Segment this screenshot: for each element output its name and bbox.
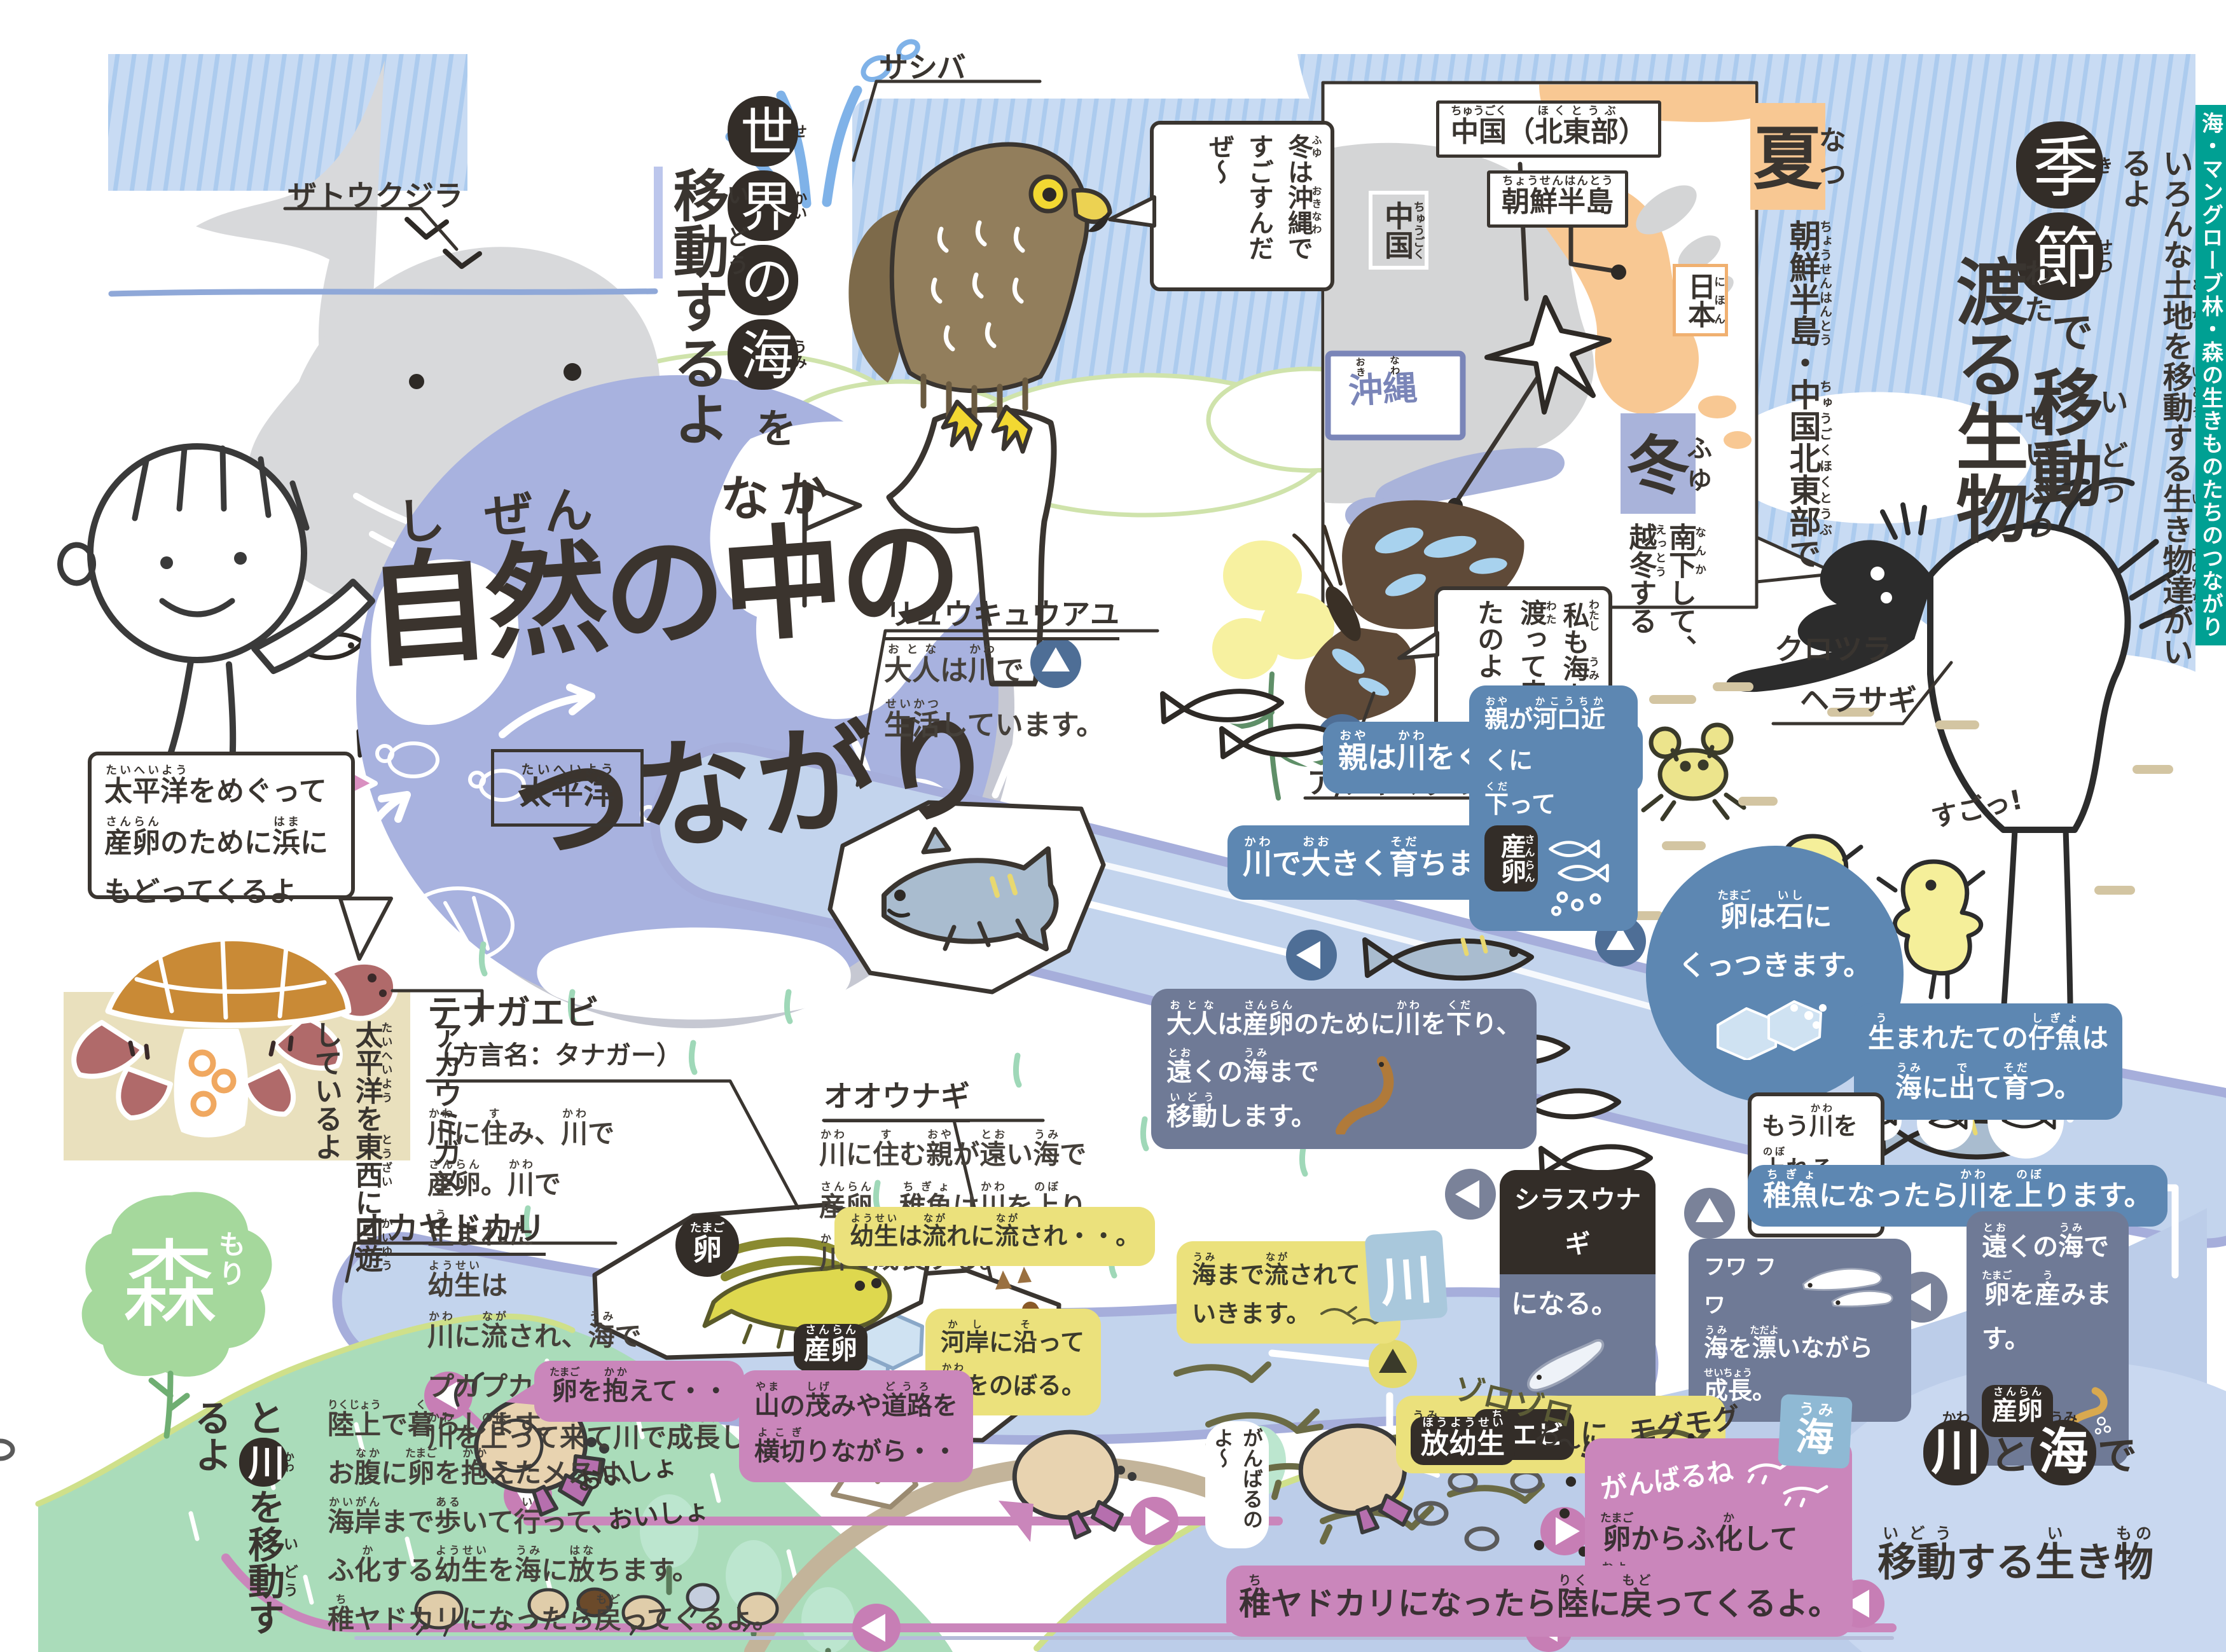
ayu-spawn-line1: 親おやが河口近かこうちかくに xyxy=(1484,696,1622,781)
bottom-title-river-circle: 川かわ xyxy=(1922,1424,1990,1481)
ayu-desc: 大人おとなは川かわで 生活せいかつしています。 xyxy=(884,644,1104,753)
release-larvae-badge: 放幼生ほうようせい xyxy=(1411,1417,1515,1465)
ayu-spawn-badge: 産さん卵らん xyxy=(1484,825,1538,891)
hermit-road-line1: 山やまの茂しげみや道路どうろを xyxy=(754,1380,958,1426)
hermit-road-line2: 横切よこぎりながら・・ xyxy=(754,1426,958,1472)
season-summer-box: 夏なつ xyxy=(1750,103,1825,210)
winter-note: 南下なんかして、越冬えっとうする xyxy=(1621,523,1706,713)
glass-eel-rest: になる。 xyxy=(1500,1274,1656,1332)
sea-sign: 海うみ xyxy=(1778,1394,1853,1469)
float-note: フワ フワ xyxy=(1704,1249,1790,1325)
eel-desc-line1: 川かわに住すむ親おやが遠とおい海うみで xyxy=(819,1129,1112,1181)
shrimp-upstream-line1: 河岸かしに沿そって xyxy=(941,1319,1086,1362)
bottom-title-to: と xyxy=(1990,1432,2029,1478)
turtle-bubble-tail xyxy=(331,895,401,965)
sky-topleft xyxy=(108,54,467,191)
nature-connection-poster: ザトウクジラ 世せ界かいの海うみ を 移い動どうするよ サシバ 冬ふゆは沖縄おき… xyxy=(0,0,2226,1652)
spawning-ayu-doodle xyxy=(1544,825,1622,921)
shrimp-step-drift1: 幼生ようせいは流ながれに流ながされ・・。 xyxy=(834,1207,1155,1266)
hermit-bubble-eggs-text: 卵たまごを抱かかえて・・ xyxy=(550,1377,729,1406)
bottom-title-de: で xyxy=(2098,1432,2137,1478)
crab-illustration xyxy=(1643,725,1744,819)
leptocephalus-doodles xyxy=(1797,1258,1896,1316)
eel-spawn-line2: 卵たまごを産うみます。 xyxy=(1982,1269,2113,1361)
turtle-bubble-line2: 産卵さんらんのために浜はまに xyxy=(104,816,338,867)
ayu-eggs-line1: 卵たまごは石いしに xyxy=(1717,890,1832,941)
hermit-return-text: 稚ちヤドカリになったら陸りくに戻もどってくるよ。 xyxy=(1239,1573,1840,1629)
hawk-label: サシバ xyxy=(879,45,966,86)
shrimp-egg-badge: 卵たまご xyxy=(675,1213,739,1277)
map-label-okinawa: 沖おき縄なわ xyxy=(1347,359,1418,413)
shrimp-egg-badge-text: 卵たまご xyxy=(690,1222,725,1269)
spoonbill-label-line1: クロツラ xyxy=(1774,626,1891,668)
ayu-name: リュウキュウアユ xyxy=(885,591,1119,640)
shrimp-alias: （方言名：タナガー） xyxy=(427,1035,682,1071)
cheer-note-1: がんばるのよ～ xyxy=(1205,1421,1269,1548)
shrimp-name: テナガエビ xyxy=(427,984,682,1035)
shrimp-drift1-text: 幼生ようせいは流ながれに流ながされ・・。 xyxy=(850,1222,1140,1250)
ayu-desc-line2: 生活せいかつしています。 xyxy=(884,698,1104,753)
season-title-wataru: 渡わたる生せい物ぶつ xyxy=(1933,254,2052,544)
sea-sign-text: 海うみ xyxy=(1795,1400,1836,1463)
ayu-step-spawn: 親おやが河口近かこうちかくに 下くだって 産さん卵らん xyxy=(1469,685,1638,931)
eel-downstream-line3: 移動いどうします。 xyxy=(1166,1102,1317,1131)
ayu-larvae-line1: 生うまれたての仔魚しぎょは xyxy=(1868,1012,2108,1062)
shrimp-tosea-line1: 海うみまで流ながされて xyxy=(1192,1251,1385,1295)
ayu-spawn-line2: 下くだって xyxy=(1484,781,1622,825)
ayu-step-larvae: 生うまれたての仔魚しぎょは 海うみに出でて育そだつ。 xyxy=(1854,1003,2122,1120)
map-label-korea: 朝鮮半島ちょうせんはんとう xyxy=(1487,170,1628,228)
eel-downstream-line1: 大人おとなは産卵さんらんのために川かわを下くだり、 xyxy=(1166,999,1521,1047)
ayu-juvenile-bubble-line1: もう川かわを xyxy=(1762,1103,1870,1146)
bottom-title-sea-circle: 海うみ xyxy=(2029,1424,2098,1481)
turtle-speech-bubble: 太平洋たいへいようをめぐって 産卵さんらんのために浜はまに もどってくるよ xyxy=(88,752,355,899)
hermit-bubble-road-tail xyxy=(992,1497,1037,1548)
shrimp-spawn-badge: 産卵さんらん xyxy=(794,1324,868,1371)
eel-name: オオウナギ xyxy=(824,1073,970,1122)
hermit-return-bar: 稚ちヤドカリになったら陸りくに戻もどってくるよ。 xyxy=(1226,1566,1853,1637)
forest-title-to: と xyxy=(242,1399,285,1436)
shrimp-spawn-badge-text: 産卵さんらん xyxy=(804,1334,857,1365)
map-label-china-ne: 中国ちゅうごく（北東部ほくとうぶ） xyxy=(1436,100,1661,158)
turtle-bubble-line3: もどってくるよ xyxy=(104,867,338,916)
hermit-desc: 陸上りくじょうで暮くらします。お腹なかに卵たまごを抱かかえたメスは、海岸かいがん… xyxy=(328,1399,779,1642)
world-sea-title-move: 移い動どうするよ xyxy=(656,167,748,446)
ayu-eggs-line2: くっつきます。 xyxy=(1678,941,1872,990)
forest-tree-label: 森もり xyxy=(121,1230,219,1341)
river-sign: 川 xyxy=(1364,1230,1448,1323)
butterfly-bubble-tail xyxy=(1396,626,1441,671)
eel-spawn-line1: 遠とおくの海うみで xyxy=(1982,1222,2113,1269)
cheer-note-2: がんばるね xyxy=(1598,1450,1736,1511)
season-winter-box: 冬ふゆ xyxy=(1621,413,1696,514)
shrimp-name-block: テナガエビ （方言名：タナガー） xyxy=(427,984,682,1071)
map-label-japan: 日本にほん xyxy=(1673,264,1728,336)
spoonbill-label-line2: ヘラサギ xyxy=(1800,677,1917,719)
hawk-bubble-tail xyxy=(1107,191,1158,242)
turtle-bubble-line1: 太平洋たいへいようをめぐって xyxy=(104,764,338,816)
forest-title-river: 川かわ xyxy=(242,1436,285,1489)
eel-doodle-small xyxy=(1328,1052,1404,1134)
ayu-step-upstream-text: 稚魚ちぎょになったら川かわを上のぼります。 xyxy=(1763,1180,2152,1212)
hermit-bubble-road: 山やまの茂しげみや道路どうろを 横切よこぎりながら・・ xyxy=(739,1370,973,1482)
main-title-line1: 自し然ぜんの中なかの xyxy=(360,458,964,691)
bottom-title-line1: 川かわと海うみで xyxy=(1922,1418,2137,1487)
hermit-hatch-line1: 卵たまごからふ化かして xyxy=(1600,1512,1837,1562)
hermit-name: オカヤドカリ xyxy=(355,1203,546,1256)
hermit-bubble-eggs-tail xyxy=(502,1377,547,1415)
hermit-bubble-eggs: 卵たまごを抱かかえて・・ xyxy=(534,1361,744,1422)
glass-eel-title: シラスウナギ xyxy=(1500,1170,1656,1274)
eel-step-downstream: 大人おとなは産卵さんらんのために川かわを下くだり、 遠とおくの海うみまで 移動い… xyxy=(1151,989,1537,1149)
map-label-china: 中国ちゅうごく xyxy=(1369,191,1428,270)
forest-river-title: と川かわを移い動どうするよ xyxy=(183,1399,297,1652)
eel-downstream-line2: 遠とおくの海うみまで xyxy=(1166,1057,1319,1087)
bottom-title-line2-text: 移動いどうする生いき物もの xyxy=(1877,1539,2153,1585)
pacific-label: 太平洋たいへいよう xyxy=(491,749,644,827)
ayu-desc-line1: 大人おとなは川かわで xyxy=(884,644,1104,698)
hawk-speech-bubble: 冬ふゆは沖縄おきなわですごすんだぜ～ xyxy=(1150,121,1334,291)
eggs-on-stones-doodle xyxy=(1708,990,1842,1060)
release-larvae-badge-text: 放幼生ほうようせい xyxy=(1421,1428,1505,1460)
shrimp-tosea-line2: いきます。 xyxy=(1192,1295,1310,1333)
season-subtitle: いろんな土地とちを移動いどうする生いき物達ものたちがいるよ xyxy=(2113,148,2203,675)
whale-label: ザトウクジラ xyxy=(287,173,463,215)
world-sea-title-particle: を xyxy=(743,407,801,448)
ayu-larvae-line2: 海うみに出でて育そだつ。 xyxy=(1868,1062,2108,1112)
bottom-title-line2: 移動いどうする生いき物もの xyxy=(1877,1525,2153,1587)
edition-tab: 海・マングローブ林・森の生きものたちのつながり xyxy=(2195,105,2226,645)
breeding-note: 朝鮮半島ちょうせんはんとう・中国北東部ちゅうごくほくとうぶで xyxy=(1781,219,1832,575)
